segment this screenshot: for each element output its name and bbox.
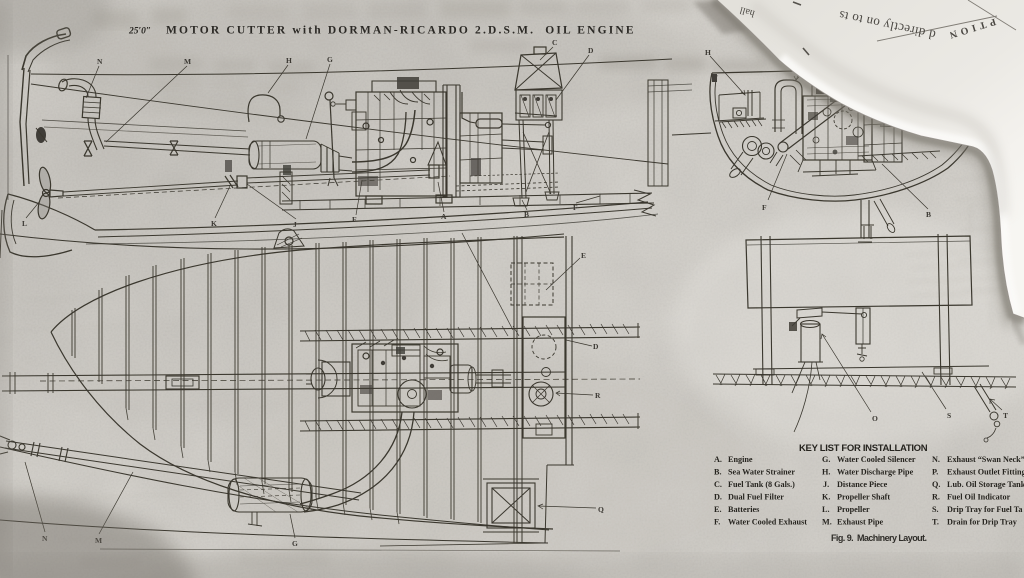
- svg-text:E.: E.: [714, 505, 722, 514]
- svg-text:C: C: [552, 38, 557, 47]
- svg-text:F: F: [762, 203, 767, 212]
- svg-text:S: S: [947, 411, 951, 420]
- svg-text:B.: B.: [714, 468, 722, 477]
- svg-text:Drain for Drip Tray: Drain for Drip Tray: [947, 518, 1018, 527]
- svg-text:D: D: [588, 46, 594, 55]
- svg-text:J.: J.: [823, 480, 829, 489]
- svg-text:Fuel Oil Indicator: Fuel Oil Indicator: [947, 493, 1011, 502]
- svg-text:L.: L.: [822, 505, 830, 514]
- svg-text:Sea Water Strainer: Sea Water Strainer: [728, 468, 795, 477]
- svg-text:A: A: [441, 212, 447, 221]
- svg-text:Drip Tray for Fuel Ta: Drip Tray for Fuel Ta: [947, 505, 1023, 514]
- svg-text:M: M: [184, 57, 191, 66]
- svg-text:H: H: [286, 56, 292, 65]
- svg-text:MOTOR CUTTER with DORMAN-RICAR: MOTOR CUTTER with DORMAN-RICARDO 2.D.S.M…: [166, 25, 635, 37]
- svg-text:Lub. Oil Storage Tank: Lub. Oil Storage Tank: [947, 480, 1024, 489]
- svg-text:Exhaust Pipe: Exhaust Pipe: [837, 518, 884, 527]
- svg-text:R: R: [595, 391, 601, 400]
- svg-text:Dual Fuel Filter: Dual Fuel Filter: [728, 493, 784, 502]
- svg-text:Batteries: Batteries: [728, 505, 759, 514]
- svg-text:Fuel Tank (8 Gals.): Fuel Tank (8 Gals.): [728, 480, 795, 489]
- svg-text:L: L: [22, 219, 27, 228]
- svg-text:C.: C.: [714, 480, 722, 489]
- svg-text:Propeller Shaft: Propeller Shaft: [837, 493, 890, 502]
- svg-text:Water Cooled Silencer: Water Cooled Silencer: [837, 455, 916, 464]
- svg-text:N.: N.: [932, 455, 940, 464]
- svg-text:J: J: [293, 220, 297, 229]
- svg-text:Exhaust Outlet Fitting: Exhaust Outlet Fitting: [947, 468, 1024, 477]
- svg-text:T.: T.: [932, 518, 939, 527]
- svg-text:B: B: [524, 210, 529, 219]
- svg-text:K: K: [211, 219, 217, 228]
- svg-text:H.: H.: [822, 468, 830, 477]
- svg-text:E: E: [581, 251, 586, 260]
- svg-text:Exhaust “Swan Neck”: Exhaust “Swan Neck”: [947, 455, 1024, 464]
- svg-text:Q.: Q.: [932, 480, 940, 489]
- svg-text:Distance Piece: Distance Piece: [837, 480, 888, 489]
- svg-text:G: G: [327, 55, 333, 64]
- svg-text:G.: G.: [822, 455, 830, 464]
- svg-text:KEY LIST FOR INSTALLATION: KEY LIST FOR INSTALLATION: [799, 443, 929, 454]
- svg-text:F: F: [573, 203, 578, 212]
- svg-text:F.: F.: [714, 518, 720, 527]
- svg-text:M.: M.: [822, 518, 832, 527]
- svg-text:Water Discharge Pipe: Water Discharge Pipe: [837, 468, 914, 477]
- svg-text:D: D: [593, 342, 599, 351]
- svg-text:R.: R.: [932, 493, 940, 502]
- svg-text:F: F: [352, 215, 357, 224]
- svg-text:P.: P.: [932, 468, 938, 477]
- svg-text:A.: A.: [714, 455, 722, 464]
- svg-text:Q: Q: [598, 505, 604, 514]
- svg-text:D.: D.: [714, 493, 722, 502]
- svg-text:25′0″: 25′0″: [128, 27, 151, 37]
- svg-text:O: O: [872, 414, 878, 423]
- svg-text:H: H: [705, 48, 711, 57]
- svg-text:Engine: Engine: [728, 455, 753, 464]
- svg-text:Fig. 9. Machinery Layout.: Fig. 9. Machinery Layout.: [831, 533, 927, 543]
- svg-text:K.: K.: [822, 493, 830, 502]
- svg-text:B: B: [926, 210, 931, 219]
- svg-text:Water Cooled Exhaust: Water Cooled Exhaust: [728, 518, 807, 527]
- svg-text:G: G: [292, 539, 298, 548]
- svg-text:Propeller: Propeller: [837, 505, 870, 514]
- svg-text:N: N: [97, 57, 103, 66]
- svg-text:T: T: [1003, 411, 1008, 420]
- svg-text:S.: S.: [932, 505, 939, 514]
